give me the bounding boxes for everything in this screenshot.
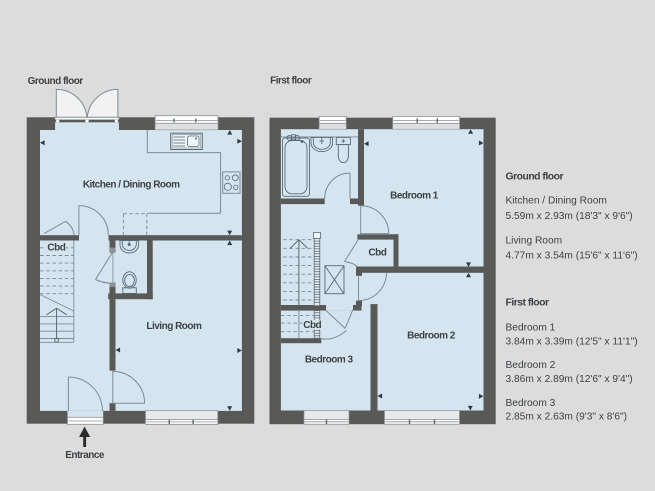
svg-text:3.84m x 3.39m (12'5" x 11'1"): 3.84m x 3.39m (12'5" x 11'1")	[506, 336, 638, 347]
svg-text:Bedroom 1: Bedroom 1	[390, 191, 439, 202]
svg-text:3.86m x 2.89m (12'6" x 9'4"): 3.86m x 2.89m (12'6" x 9'4")	[506, 374, 633, 385]
svg-text:First floor: First floor	[506, 297, 549, 308]
svg-text:Bedroom 2: Bedroom 2	[407, 331, 456, 342]
svg-text:Bedroom 2: Bedroom 2	[506, 360, 556, 371]
svg-text:First floor: First floor	[270, 76, 312, 87]
svg-text:2.85m x 2.63m (9'3" x 8'6"): 2.85m x 2.63m (9'3" x 8'6")	[506, 412, 628, 423]
svg-text:Bedroom 1: Bedroom 1	[506, 323, 556, 334]
svg-text:Bedroom 3: Bedroom 3	[506, 398, 556, 409]
svg-text:4.77m x 3.54m (15'6" x 11'6"): 4.77m x 3.54m (15'6" x 11'6")	[506, 250, 638, 261]
svg-text:Cbd: Cbd	[368, 248, 386, 259]
svg-text:Living Room: Living Room	[506, 235, 563, 246]
svg-text:Living Room: Living Room	[146, 321, 202, 332]
svg-text:Kitchen / Dining Room: Kitchen / Dining Room	[83, 180, 180, 191]
svg-text:Ground floor: Ground floor	[28, 76, 84, 87]
svg-text:5.59m x 2.93m (18'3" x 9'6"): 5.59m x 2.93m (18'3" x 9'6")	[506, 211, 633, 222]
svg-text:Bedroom 3: Bedroom 3	[305, 354, 354, 365]
svg-text:Cbd: Cbd	[47, 243, 65, 254]
svg-text:Entrance: Entrance	[65, 450, 105, 461]
svg-text:Ground floor: Ground floor	[506, 172, 564, 183]
svg-text:Cbd: Cbd	[303, 320, 321, 331]
svg-text:Kitchen / Dining Room: Kitchen / Dining Room	[506, 196, 607, 207]
